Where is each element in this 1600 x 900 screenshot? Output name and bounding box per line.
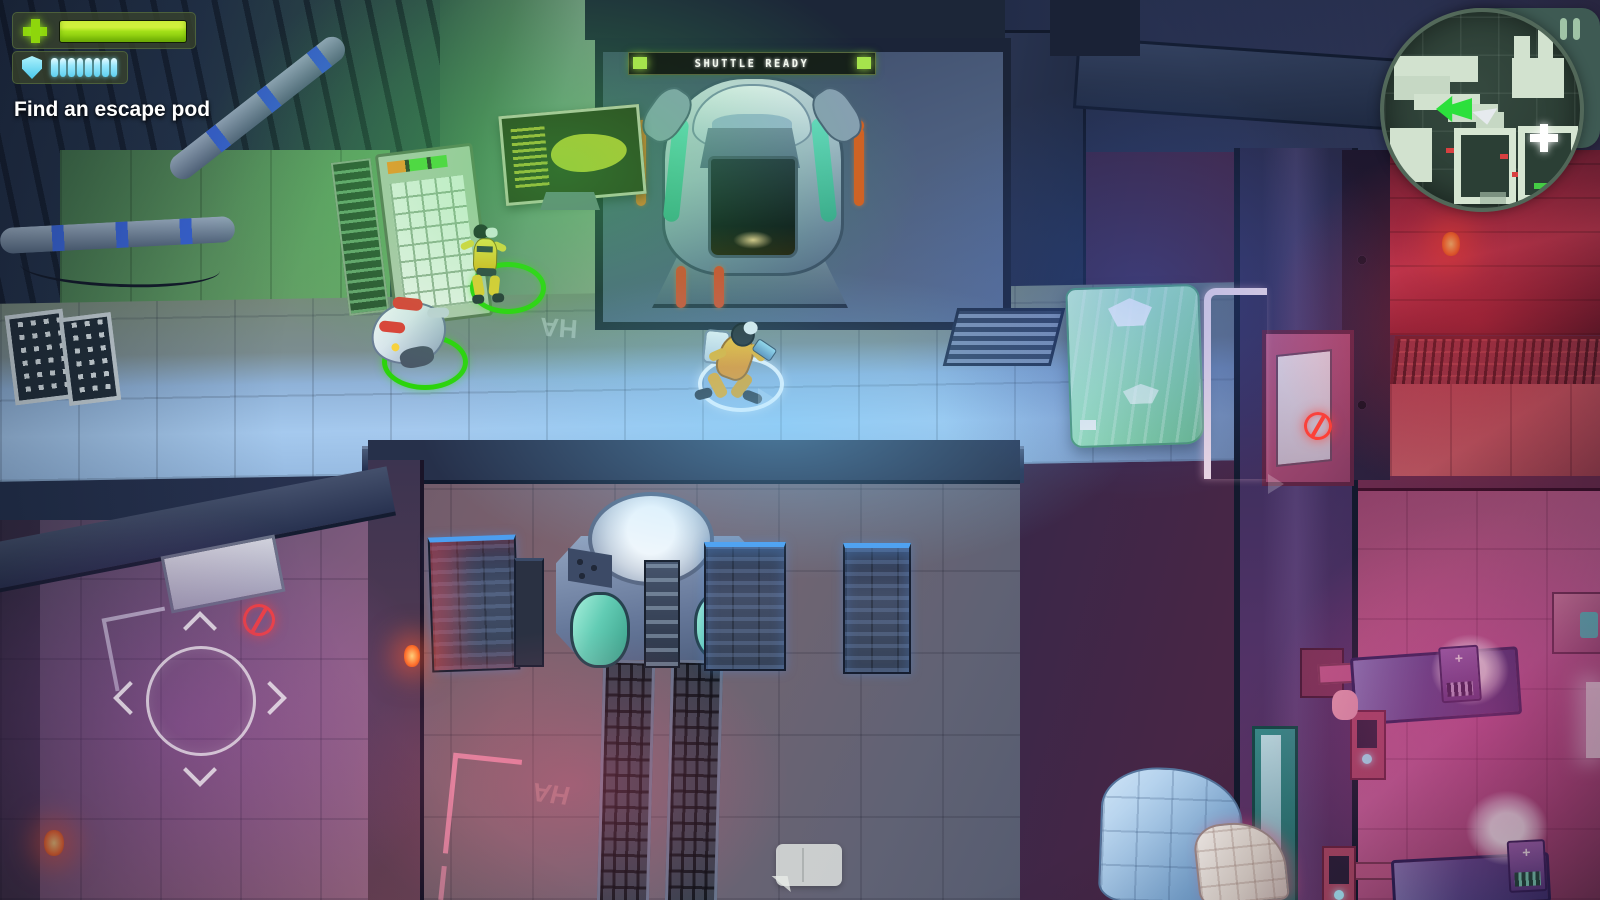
pause-button[interactable] <box>1548 12 1592 46</box>
pod-fuel-tube <box>854 128 864 206</box>
conveyor-track <box>665 659 723 900</box>
shuttle-status-banner: SHUTTLE READY <box>628 52 876 75</box>
shield-pip <box>111 58 118 77</box>
player-helmet-cap <box>743 321 758 335</box>
med-scanner: + <box>1507 839 1548 893</box>
shield-pip <box>77 58 84 77</box>
minimap-door-marker-red <box>1500 154 1508 159</box>
med-scanner-plus: + <box>1454 650 1463 667</box>
chevron-right-icon <box>253 681 287 715</box>
wall-lamp <box>404 645 420 667</box>
minimap-door-marker-red <box>1446 148 1454 153</box>
cargo-room-left-wall <box>368 460 424 900</box>
corridor-floor-marking: HA <box>539 311 579 345</box>
crew-strap <box>477 246 493 253</box>
player-boot <box>694 387 714 401</box>
shield-pip <box>51 58 58 77</box>
coolant-cylinder <box>570 592 630 668</box>
cargo-room-top-wall <box>368 440 1020 484</box>
minimap-door-marker-red <box>1512 172 1518 177</box>
lit-doorway <box>1586 682 1600 758</box>
health-bar-track <box>59 20 187 43</box>
health-cross-icon <box>23 19 47 43</box>
virtual-joystick[interactable] <box>110 608 286 792</box>
minimap-room-shape <box>1480 192 1506 204</box>
minimap-objective-plus-icon <box>1530 124 1558 152</box>
objective-text: Find an escape pod <box>14 98 210 122</box>
shield-pip <box>102 58 109 77</box>
direction-arrow-decal <box>1268 474 1284 494</box>
machine-ladder-column <box>644 560 680 668</box>
health-panel <box>12 12 196 49</box>
health-fill <box>60 21 186 42</box>
server-rack <box>704 542 786 671</box>
floor-line-marking <box>443 753 522 861</box>
banner-glow-segment <box>857 57 871 69</box>
joystick-ring[interactable] <box>146 646 256 756</box>
shuttle-status-text: SHUTTLE READY <box>695 58 810 70</box>
med-scanner: + <box>1438 645 1482 704</box>
crew-boot <box>492 293 505 303</box>
banner-glow-segment <box>633 57 647 69</box>
locked-door <box>1276 349 1332 467</box>
wall-lamp <box>44 830 64 856</box>
pod-base-pipe <box>676 266 686 308</box>
med-console <box>1322 846 1356 900</box>
schematic-mount <box>540 192 600 210</box>
ship-schematic-board <box>498 104 646 206</box>
wall-lamp <box>1442 232 1460 256</box>
pause-icon <box>1573 18 1580 40</box>
pause-icon <box>1560 18 1567 40</box>
minimap-door-marker-green <box>1534 183 1548 189</box>
conveyor-track <box>597 659 655 900</box>
robot-arm <box>427 307 449 318</box>
chevron-left-icon <box>113 681 147 715</box>
crew-pack <box>485 227 498 238</box>
shield-panel <box>12 51 128 84</box>
shield-pip <box>60 58 67 77</box>
direction-arrow-decal <box>758 388 774 408</box>
shuttle-bay-top-wall <box>585 0 1005 40</box>
pod-hatch-opening <box>708 156 798 258</box>
crew-boot <box>472 294 485 304</box>
corner-pipe <box>1204 288 1267 479</box>
wall-vent <box>59 312 121 406</box>
chevron-down-icon <box>183 753 217 787</box>
cargo-floor-marking: HA <box>528 776 573 811</box>
minimap-room-shape <box>1390 128 1432 182</box>
crew-member <box>455 220 521 314</box>
shield-icon <box>22 56 42 79</box>
medbay-equipment <box>1552 592 1600 654</box>
server-rack <box>428 535 521 673</box>
speech-bubble-icon[interactable] <box>776 844 842 886</box>
minimap-room-shape <box>1514 36 1530 66</box>
crate-label-tag <box>1080 420 1096 430</box>
med-bed-pillow <box>1332 690 1358 720</box>
pod-base-pipe <box>714 266 724 308</box>
red-room-floor <box>1390 384 1600 476</box>
shield-pip <box>68 58 75 77</box>
girder-top <box>1050 0 1140 56</box>
chevron-up-icon <box>183 611 217 645</box>
med-scanner-plus: + <box>1522 844 1531 860</box>
shield-pips <box>51 58 117 77</box>
game-screen: HA HA <box>0 0 1600 900</box>
med-console <box>1350 710 1386 780</box>
floor-vent-grille <box>943 308 1065 366</box>
server-rack <box>843 543 911 674</box>
server-rack-side <box>514 558 544 667</box>
shield-pip <box>85 58 92 77</box>
shield-pip <box>94 58 101 77</box>
